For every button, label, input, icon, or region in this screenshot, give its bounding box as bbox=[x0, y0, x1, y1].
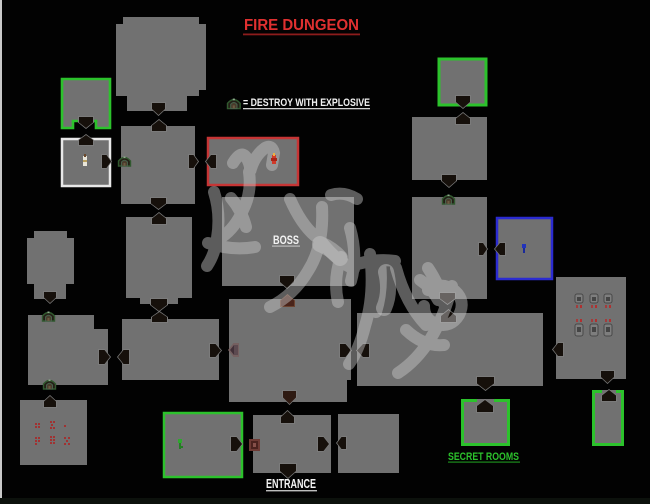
svg-text:ENTRANCE: ENTRANCE bbox=[266, 477, 316, 491]
svg-text:SECRET ROOMS: SECRET ROOMS bbox=[448, 451, 519, 463]
svg-text:FIRE DUNGEON: FIRE DUNGEON bbox=[244, 17, 359, 34]
svg-text:= DESTROY WITH EXPLOSIVE: = DESTROY WITH EXPLOSIVE bbox=[243, 97, 370, 109]
svg-text:BOSS: BOSS bbox=[273, 235, 299, 247]
